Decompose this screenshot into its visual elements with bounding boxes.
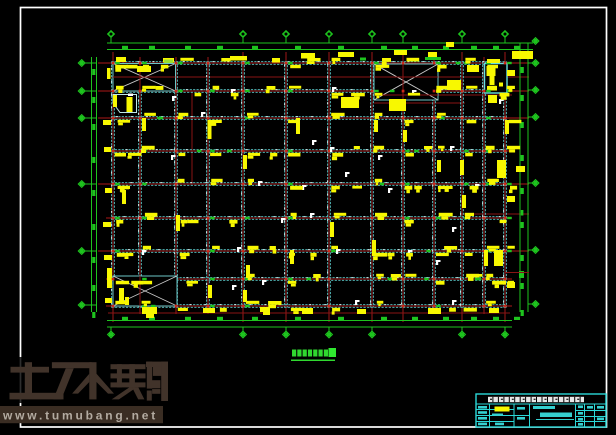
svg-text:www.tumubang.net: www.tumubang.net <box>2 409 158 423</box>
